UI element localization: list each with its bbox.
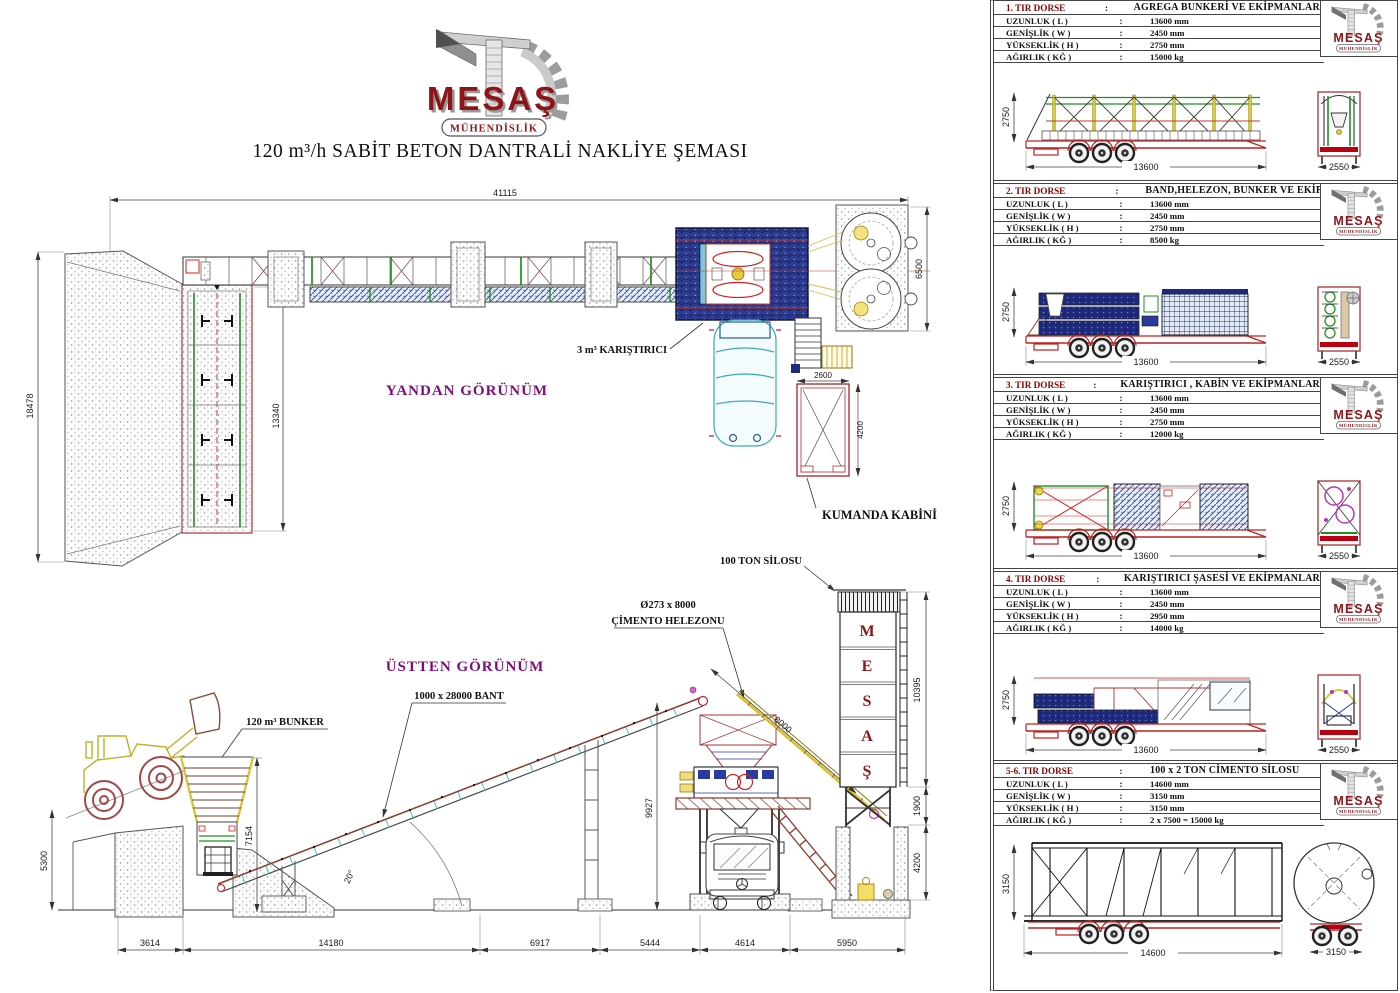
dim-cabin-width: 2600	[814, 371, 832, 380]
trailer-dim-w: 2550	[1329, 745, 1349, 755]
trailer-dim-w: 2550	[1329, 357, 1349, 367]
main-drawing: MESAŞ MESAŞ MÜHENDİSLİK 120 m³/h SABİT B…	[0, 0, 990, 993]
spec-panel: 2750	[990, 0, 1398, 991]
company-logo: MESAŞ MESAŞ MÜHENDİSLİK	[427, 29, 562, 136]
silo-letter: E	[862, 658, 873, 675]
silo-letter: A	[861, 728, 873, 745]
trailer-dim-l: 13600	[1133, 745, 1158, 755]
label-control-cabin: KUMANDA KABİNİ	[822, 508, 937, 522]
dim-wall-height: 5300	[39, 851, 49, 871]
spec-section-3: 2750	[994, 378, 1397, 572]
drawing-title: 120 m³/h SABİT BETON DANTRALİ NAKLİYE ŞE…	[252, 141, 747, 162]
label-screw-size: Ø273 x 8000	[640, 600, 695, 611]
silo-elevation: M E S A Ş	[832, 590, 910, 918]
trailer-dim-h: 3150	[1001, 874, 1011, 894]
dim-bottom: 5444	[640, 938, 660, 948]
dim-bottom: 3614	[140, 938, 160, 948]
spec-table-5: 5-6. TIR DORSE:100 x 2 TON CİMENTO SİLOS…	[994, 764, 1324, 826]
trailer-dim-h: 2750	[1001, 107, 1011, 127]
drawing-canvas: MESAŞ MESAŞ MÜHENDİSLİK 120 m³/h SABİT B…	[0, 0, 1400, 993]
spec-table-3: 3. TIR DORSE:KARIŞTIRICI , KABİN VE EKİP…	[994, 378, 1324, 440]
label-silo: 100 TON SİLOSU	[720, 555, 802, 567]
logo-mini: MESAŞ MÜHENDİSLİK	[1320, 572, 1397, 628]
logo-text: MESAŞ	[427, 80, 559, 117]
logo-mini: MESAŞ MÜHENDİSLİK	[1320, 1, 1397, 57]
trailer-dim-h: 2750	[1001, 690, 1011, 710]
dim-stock-depth: 18478	[25, 393, 35, 418]
logo-mini: MESAŞ MÜHENDİSLİK	[1320, 764, 1397, 820]
spec-table-2: 2. TIR DORSE:BAND,HELEZON, BUNKER VE EKİ…	[994, 184, 1324, 246]
svg-text:MESAŞ: MESAŞ	[1333, 408, 1383, 422]
silo-letter: S	[863, 693, 872, 710]
spec-table-1: 1. TIR DORSE:AGREGA BUNKERİ VE EKİPMANLA…	[994, 1, 1324, 63]
elevation-view: ÜSTTEN GÖRÜNÜM 1000 x 28000 BANT Ø273 x …	[39, 555, 930, 955]
dim-silo-legs: 1900	[912, 796, 922, 816]
logo-subtitle: MÜHENDİSLİK	[450, 122, 538, 135]
label-mixer: 3 m³ KARIŞTIRICI	[577, 345, 667, 356]
label-bunker: 120 m³ BUNKER	[246, 717, 324, 728]
spec-section-2: 2750	[994, 184, 1397, 378]
svg-text:MÜHENDİSLİK: MÜHENDİSLİK	[1339, 229, 1378, 234]
trailer-dim-h: 2750	[1001, 496, 1011, 516]
dim-bunker-height: 7154	[244, 826, 254, 846]
dim-bottom: 6917	[530, 938, 550, 948]
dim-cabin-length: 4200	[856, 421, 865, 439]
logo-subtitle: MÜHENDİSLİK	[1339, 46, 1378, 51]
logo-mini: MESAŞ MÜHENDİSLİK	[1320, 184, 1397, 240]
conveyor-bridge-plan	[183, 242, 690, 307]
bunker-plan	[182, 280, 252, 533]
panel-content: AGREGA BUNKERİ VE EKİPMANLARI	[1120, 2, 1324, 13]
svg-text:MESAŞ: MESAŞ	[1333, 602, 1383, 616]
dim-bottom: 5950	[837, 938, 857, 948]
trailer-dim-w: 2550	[1329, 162, 1349, 172]
dim-bottom: 14180	[318, 938, 343, 948]
plan-view: 41115 18478 13340	[25, 188, 937, 566]
silos-plan	[808, 205, 917, 331]
spec-section-1: 2750	[994, 1, 1397, 184]
logo-text: MESAŞ	[1333, 31, 1383, 45]
trailer-dim-w: 3150	[1326, 947, 1346, 957]
trailer-rear-5: 3150	[1294, 843, 1374, 957]
mixer-tower-elevation: 9927	[644, 703, 852, 910]
svg-text:MÜHENDİSLİK: MÜHENDİSLİK	[1339, 423, 1378, 428]
dim-pit-depth: 4200	[912, 853, 922, 873]
spec-table-4: 4. TIR DORSE:KARIŞTIRICI ŞASESİ VE EKİPM…	[994, 572, 1324, 634]
dim-silo-height: 10395	[912, 677, 922, 702]
svg-text:MESAŞ: MESAŞ	[1333, 214, 1383, 228]
svg-text:MÜHENDİSLİK: MÜHENDİSLİK	[1339, 809, 1378, 814]
trailer-rear-4: 2550	[1318, 675, 1360, 755]
trailer-rear-3: 2550	[1318, 481, 1360, 561]
trailer-dim-l: 13600	[1133, 551, 1158, 561]
silo-letter: Ş	[863, 763, 872, 780]
label-belt: 1000 x 28000 BANT	[414, 691, 504, 702]
trailer-rear-2: 2550	[1318, 287, 1360, 367]
logo-mini: MESAŞ MÜHENDİSLİK	[1320, 378, 1397, 434]
label-screw-name: ÇİMENTO HELEZONU	[611, 615, 725, 627]
dim-bottom: 4614	[735, 938, 755, 948]
trailer-dim-w: 2550	[1329, 551, 1349, 561]
dim-silo-block-width: 6500	[914, 259, 924, 279]
dim-bunker-length: 13340	[271, 403, 281, 428]
control-cabin-plan	[797, 384, 849, 476]
dim-tower-height: 9927	[644, 798, 654, 818]
svg-text:MÜHENDİSLİK: MÜHENDİSLİK	[1339, 617, 1378, 622]
spec-section-5: 3150	[994, 764, 1397, 990]
trailer-dim-h: 2750	[1001, 302, 1011, 322]
label-lower-view: ÜSTTEN GÖRÜNÜM	[386, 658, 545, 675]
trailer-dim-l: 14600	[1140, 948, 1165, 958]
truck-mixer-plan	[709, 320, 781, 446]
silo-letter: M	[859, 623, 874, 640]
svg-text:MESAŞ: MESAŞ	[1333, 794, 1383, 808]
spec-section-4: 2750	[994, 572, 1397, 764]
panel-no: 1. TIR DORSE	[994, 3, 1093, 13]
bottom-dims: 3614 14180 6917 5444 4614 5950	[118, 915, 905, 955]
dim-total-length: 41115	[493, 188, 517, 198]
dim-angle: 20°	[342, 868, 357, 885]
trailer-dim-l: 13600	[1133, 162, 1158, 172]
trailer-rear-1: 2550	[1318, 92, 1360, 172]
label-upper-view: YANDAN GÖRÜNÜM	[386, 382, 548, 399]
trailer-dim-l: 13600	[1133, 357, 1158, 367]
